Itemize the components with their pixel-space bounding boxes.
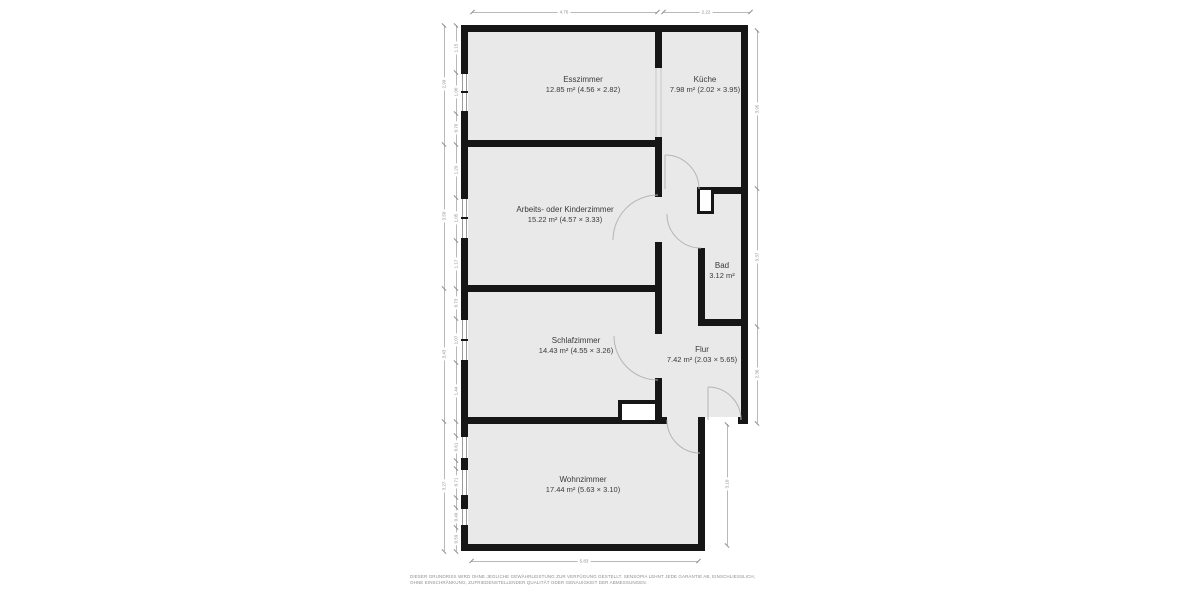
room-details: 12.85 m² (4.56 × 2.82) xyxy=(546,85,620,95)
dim-label: 1.05 xyxy=(454,212,459,225)
dim-label: 3.27 xyxy=(442,480,447,493)
dim-label: 0.71 xyxy=(454,476,459,489)
floor-patch-wohnzimmer-door xyxy=(667,417,698,424)
window-frame-end xyxy=(461,197,468,199)
window-wohnzimmer-3 xyxy=(461,507,468,527)
wall-bottom-exterior xyxy=(461,544,705,551)
window-wohnzimmer-1 xyxy=(461,435,468,460)
wall-esszimmer-kueche-bottom xyxy=(655,137,662,197)
window-arbeitszimmer xyxy=(461,197,468,240)
dim-label: 2.22 xyxy=(700,10,713,15)
dim-label: 1.44 xyxy=(454,385,459,398)
window-frame-end xyxy=(461,468,468,470)
room-name: Flur xyxy=(667,345,737,355)
dim-line-right-outer xyxy=(757,30,758,423)
room-name: Arbeits- oder Kinderzimmer xyxy=(516,205,613,215)
dim-tick xyxy=(748,10,753,15)
wall-esszimmer-kueche-top xyxy=(655,25,662,68)
dim-label: 0.76 xyxy=(454,122,459,135)
wall-top-exterior xyxy=(461,25,748,32)
window-frame-end xyxy=(461,458,468,460)
room-name: Wohnzimmer xyxy=(546,475,620,485)
room-label-arbeitszimmer: Arbeits- oder Kinderzimmer 15.22 m² (4.5… xyxy=(516,205,613,224)
room-label-schlafzimmer: Schlafzimmer 14.43 m² (4.55 × 3.26) xyxy=(539,336,613,355)
window-pane xyxy=(462,468,467,497)
dim-tick xyxy=(696,559,701,564)
dim-label: 3.50 xyxy=(442,210,447,223)
wall-wohnzimmer-right xyxy=(698,417,705,551)
room-label-bad: Bad 3.12 m² xyxy=(709,261,734,280)
room-name: Bad xyxy=(709,261,734,271)
dim-label: 2.36 xyxy=(755,368,760,381)
room-label-esszimmer: Esszimmer 12.85 m² (4.56 × 2.82) xyxy=(546,75,620,94)
dim-label: 1.15 xyxy=(454,42,459,55)
dim-label: 1.07 xyxy=(454,334,459,347)
window-frame-end xyxy=(461,318,468,320)
window-mullion xyxy=(461,339,468,341)
dim-label: 5.83 xyxy=(578,559,591,564)
window-esszimmer xyxy=(461,72,468,113)
window-frame-end xyxy=(461,495,468,497)
room-details: 14.43 m² (4.55 × 3.26) xyxy=(539,346,613,356)
room-details: 17.44 m² (5.63 × 3.10) xyxy=(546,485,620,495)
window-frame-end xyxy=(461,525,468,527)
window-schlafzimmer xyxy=(461,318,468,362)
wall-flur-mid xyxy=(655,242,662,334)
room-label-wohnzimmer: Wohnzimmer 17.44 m² (5.63 × 3.10) xyxy=(546,475,620,494)
room-details: 7.42 m² (2.03 × 5.65) xyxy=(667,355,737,365)
dim-label: 3.37 xyxy=(755,251,760,264)
room-label-flur: Flur 7.42 m² (2.03 × 5.65) xyxy=(667,345,737,364)
disclaimer-text: DIESER GRUNDRISS WIRD OHNE JEGLICHE GEWÄ… xyxy=(410,574,762,586)
dim-label: 1.00 xyxy=(454,86,459,99)
dim-label: 4.76 xyxy=(558,10,571,15)
window-mullion xyxy=(461,217,468,219)
dim-label: 3.43 xyxy=(442,348,447,361)
room-details: 15.22 m² (4.57 × 3.33) xyxy=(516,215,613,225)
wall-bad-left xyxy=(698,248,705,326)
window-frame-end xyxy=(461,111,468,113)
duct-shaft xyxy=(697,187,714,214)
wall-entry-stub xyxy=(738,417,748,424)
floor-plan-canvas: Esszimmer 12.85 m² (4.56 × 2.82) Küche 7… xyxy=(0,0,1200,600)
dim-label: 2.99 xyxy=(442,78,447,91)
wall-arbeitszimmer-schlafzimmer xyxy=(461,285,662,292)
dim-label: 0.49 xyxy=(454,511,459,524)
room-details: 3.12 m² xyxy=(709,271,734,281)
wall-right-exterior xyxy=(741,25,748,424)
window-mullion xyxy=(461,91,468,93)
wall-bad-bottom xyxy=(698,319,748,326)
room-details: 7.98 m² (2.02 × 3.95) xyxy=(670,85,740,95)
window-frame-end xyxy=(461,507,468,509)
window-pane xyxy=(462,507,467,527)
dim-label: 3.95 xyxy=(755,103,760,116)
window-frame-end xyxy=(461,238,468,240)
dim-label: 0.73 xyxy=(454,297,459,310)
dim-label: 1.29 xyxy=(454,164,459,177)
dim-label: 1.17 xyxy=(454,258,459,271)
window-pane xyxy=(462,435,467,460)
room-name: Esszimmer xyxy=(546,75,620,85)
room-label-kueche: Küche 7.98 m² (2.02 × 3.95) xyxy=(670,75,740,94)
dim-label: 0.61 xyxy=(454,441,459,454)
dim-tick xyxy=(655,10,660,15)
room-name: Schlafzimmer xyxy=(539,336,613,346)
window-frame-end xyxy=(461,435,468,437)
window-frame-end xyxy=(461,72,468,74)
dim-label: 0.59 xyxy=(454,533,459,546)
dim-label: 3.10 xyxy=(725,478,730,491)
schlafzimmer-niche xyxy=(618,400,659,424)
wall-esszimmer-arbeitszimmer xyxy=(461,140,662,147)
window-wohnzimmer-2 xyxy=(461,468,468,497)
window-frame-end xyxy=(461,360,468,362)
room-name: Küche xyxy=(670,75,740,85)
